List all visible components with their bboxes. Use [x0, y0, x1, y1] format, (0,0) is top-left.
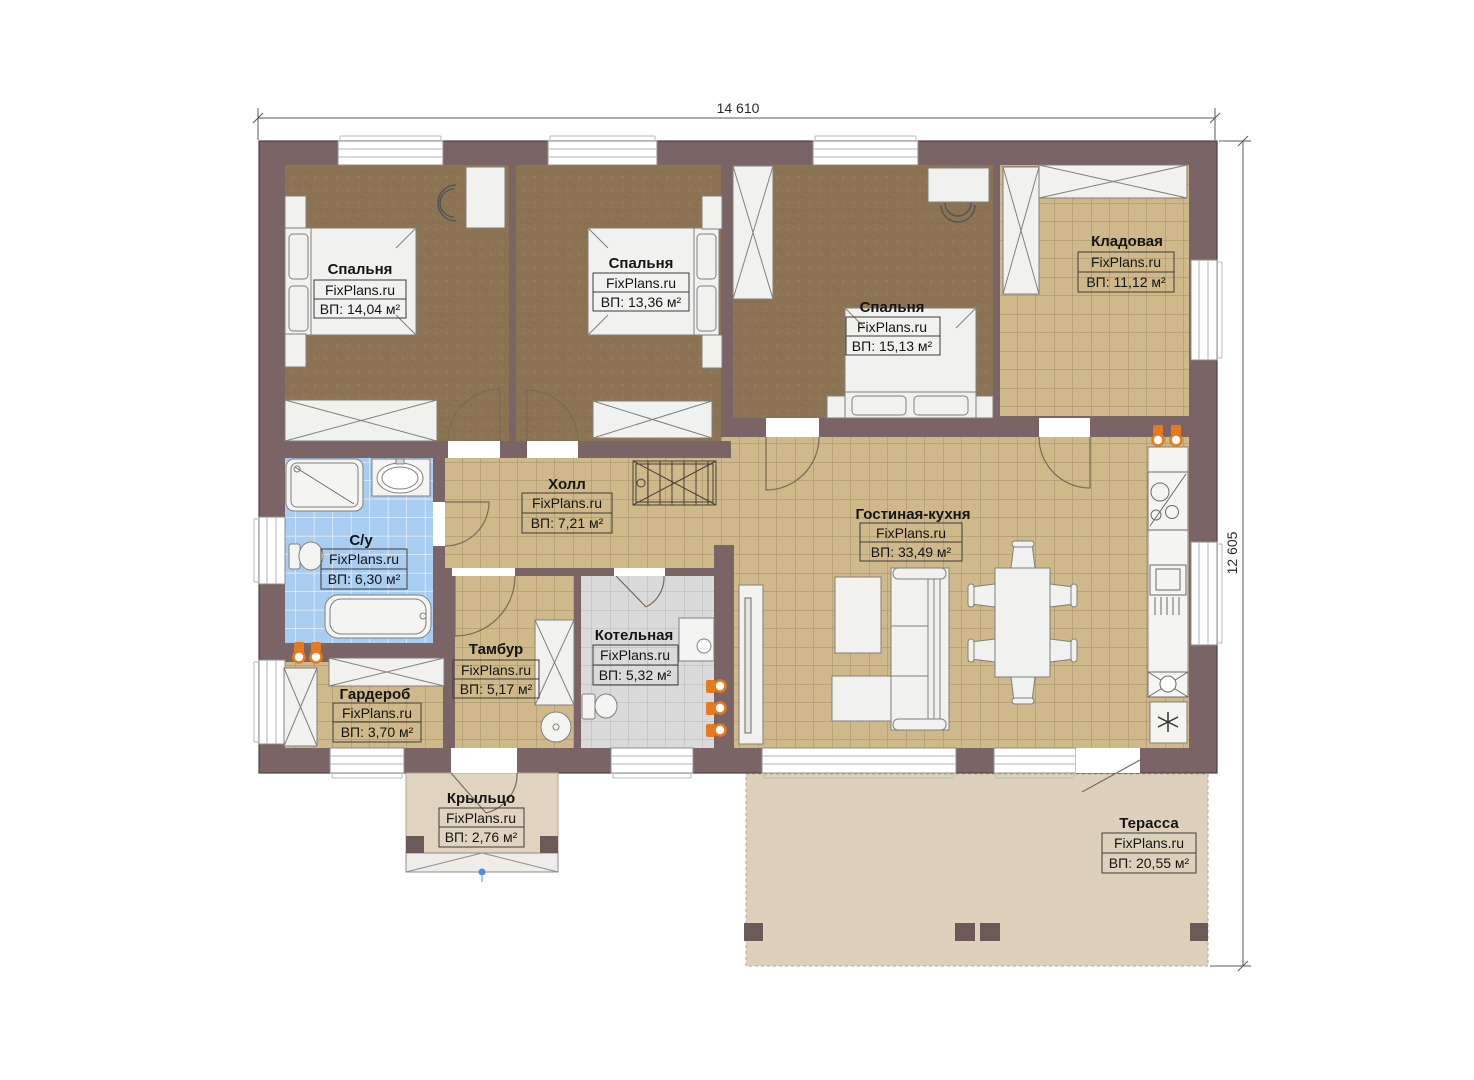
svg-text:Котельная: Котельная: [595, 627, 674, 644]
svg-text:ВП: 6,30 м²: ВП: 6,30 м²: [328, 571, 401, 587]
svg-text:ВП: 20,55 м²: ВП: 20,55 м²: [1109, 855, 1190, 871]
svg-text:С/у: С/у: [349, 532, 373, 549]
svg-text:FixPlans.ru: FixPlans.ru: [342, 705, 412, 721]
svg-text:Спальня: Спальня: [328, 261, 393, 278]
svg-text:ВП: 5,32 м²: ВП: 5,32 м²: [599, 667, 672, 683]
svg-text:FixPlans.ru: FixPlans.ru: [857, 319, 927, 335]
svg-text:FixPlans.ru: FixPlans.ru: [1091, 254, 1161, 270]
svg-text:14 610: 14 610: [717, 100, 760, 116]
svg-text:ВП: 14,04 м²: ВП: 14,04 м²: [320, 301, 401, 317]
svg-text:FixPlans.ru: FixPlans.ru: [600, 647, 670, 663]
svg-text:FixPlans.ru: FixPlans.ru: [461, 662, 531, 678]
svg-text:ВП: 7,21 м²: ВП: 7,21 м²: [531, 515, 604, 531]
svg-text:ВП: 2,76 м²: ВП: 2,76 м²: [445, 829, 518, 845]
svg-text:Спальня: Спальня: [860, 299, 925, 316]
svg-text:FixPlans.ru: FixPlans.ru: [876, 525, 946, 541]
svg-text:FixPlans.ru: FixPlans.ru: [329, 551, 399, 567]
svg-text:12 605: 12 605: [1224, 531, 1240, 574]
svg-text:ВП: 13,36 м²: ВП: 13,36 м²: [601, 294, 682, 310]
svg-text:Спальня: Спальня: [609, 255, 674, 272]
svg-text:Тамбур: Тамбур: [469, 641, 523, 658]
svg-text:FixPlans.ru: FixPlans.ru: [606, 275, 676, 291]
svg-text:Кладовая: Кладовая: [1091, 233, 1163, 250]
svg-text:ВП: 11,12 м²: ВП: 11,12 м²: [1086, 274, 1166, 290]
svg-text:Гардероб: Гардероб: [340, 686, 411, 703]
svg-text:Крыльцо: Крыльцо: [447, 790, 515, 807]
svg-text:Гостиная-кухня: Гостиная-кухня: [856, 506, 971, 523]
svg-text:FixPlans.ru: FixPlans.ru: [325, 282, 395, 298]
svg-text:FixPlans.ru: FixPlans.ru: [1114, 835, 1184, 851]
svg-text:ВП: 3,70 м²: ВП: 3,70 м²: [341, 724, 414, 740]
svg-text:Холл: Холл: [548, 476, 586, 493]
svg-text:ВП: 33,49 м²: ВП: 33,49 м²: [871, 544, 952, 560]
svg-text:Терасса: Терасса: [1119, 815, 1179, 832]
svg-text:FixPlans.ru: FixPlans.ru: [532, 495, 602, 511]
svg-text:ВП: 15,13 м²: ВП: 15,13 м²: [852, 338, 933, 354]
svg-text:ВП: 5,17 м²: ВП: 5,17 м²: [460, 681, 533, 697]
svg-text:FixPlans.ru: FixPlans.ru: [446, 810, 516, 826]
